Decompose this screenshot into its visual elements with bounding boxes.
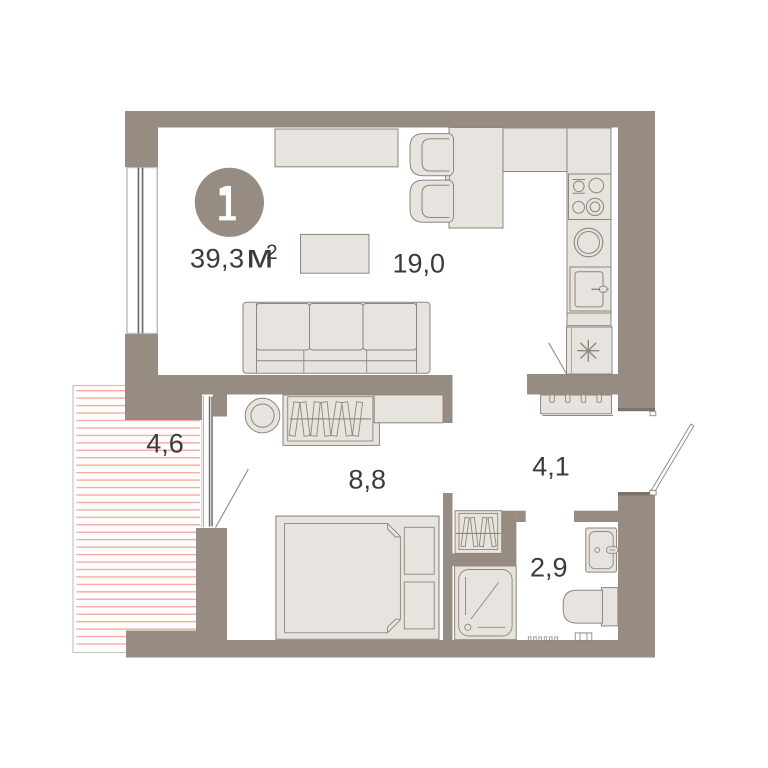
svg-text:8,8: 8,8 [348,465,386,495]
svg-text:4,6: 4,6 [146,428,184,458]
svg-text:19,0: 19,0 [393,248,446,278]
svg-text:2,9: 2,9 [530,553,568,583]
svg-text:39,3: 39,3 [190,243,245,274]
svg-text:4,1: 4,1 [532,451,570,481]
svg-text:2: 2 [266,241,278,264]
